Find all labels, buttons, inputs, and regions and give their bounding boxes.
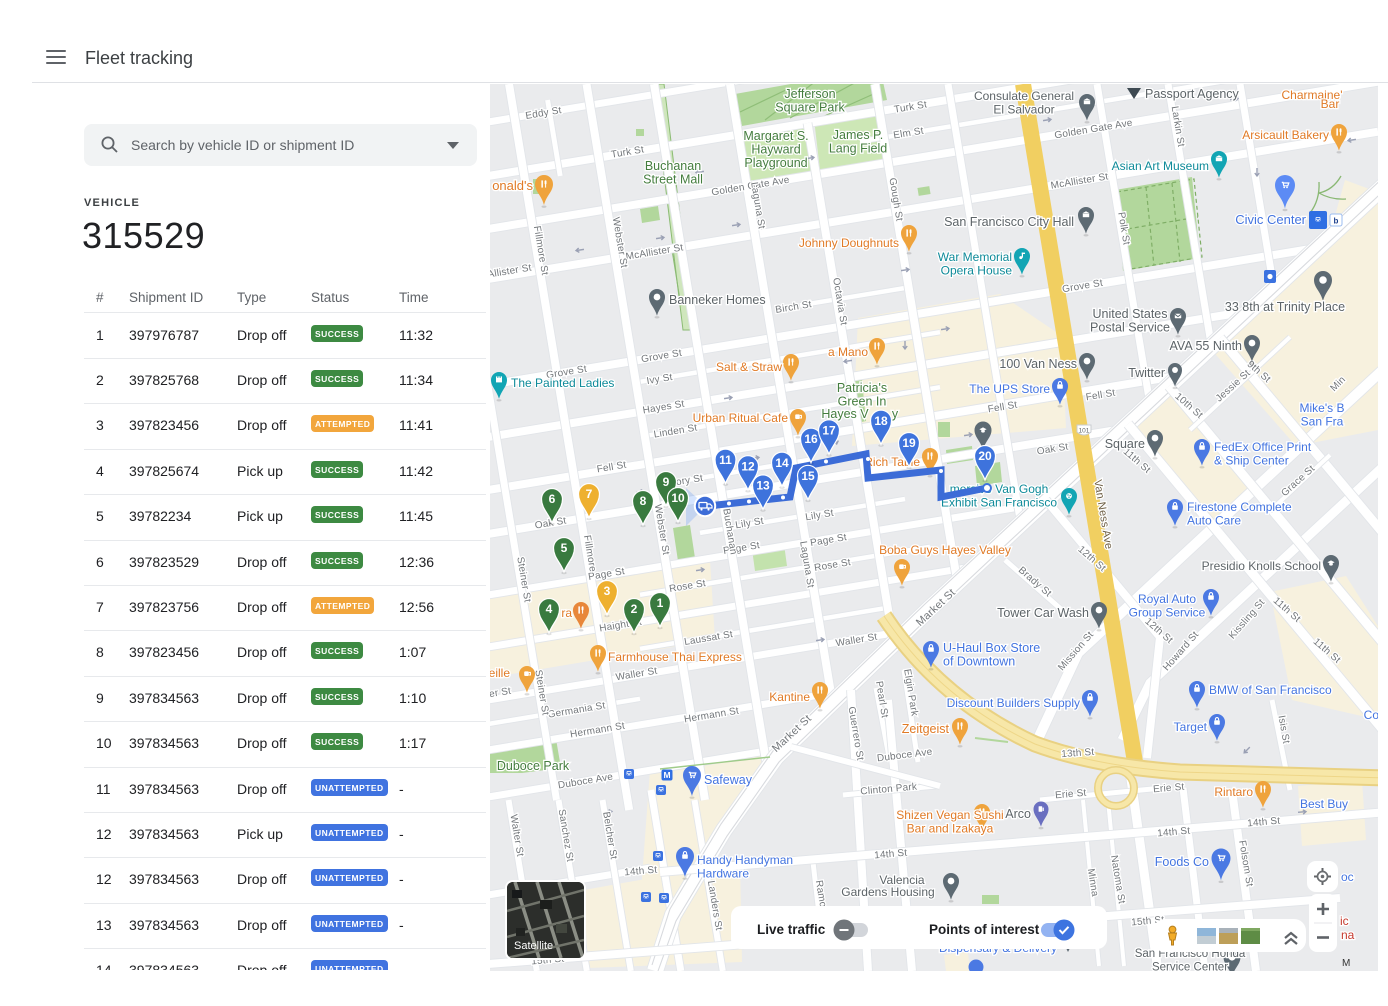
- svg-text:Satellite: Satellite: [514, 940, 553, 952]
- svg-text:Presidio Knolls School: Presidio Knolls School: [1202, 559, 1321, 573]
- svg-text:Urban Ritual Cafe: Urban Ritual Cafe: [693, 411, 789, 425]
- svg-text:Hayward: Hayward: [751, 143, 800, 157]
- svg-text:Exhibit San Francisco: Exhibit San Francisco: [941, 496, 1057, 510]
- svg-text:5: 5: [561, 541, 568, 555]
- svg-text:eille: eille: [490, 666, 510, 680]
- svg-text:Zeitgeist: Zeitgeist: [902, 722, 950, 736]
- svg-text:13: 13: [756, 479, 770, 493]
- svg-text:33 8th at Trinity Place: 33 8th at Trinity Place: [1225, 300, 1345, 314]
- svg-text:3: 3: [604, 584, 611, 598]
- svg-text:12: 12: [741, 459, 755, 473]
- svg-text:Farmhouse Thai Express: Farmhouse Thai Express: [608, 650, 742, 664]
- svg-text:Target: Target: [1174, 720, 1208, 734]
- svg-text:Hayes V: Hayes V: [821, 407, 869, 421]
- svg-text:Twitter: Twitter: [1128, 366, 1165, 380]
- svg-text:U-Haul Box Store: U-Haul Box Store: [943, 641, 1040, 655]
- svg-text:Banneker Homes: Banneker Homes: [669, 293, 766, 307]
- svg-text:ra: ra: [561, 606, 572, 620]
- svg-text:Foods Co: Foods Co: [1155, 855, 1209, 869]
- svg-text:Johnny Doughnuts: Johnny Doughnuts: [799, 236, 899, 250]
- svg-text:Bar and Izakaya: Bar and Izakaya: [907, 822, 994, 836]
- svg-text:1: 1: [657, 596, 664, 610]
- svg-text:4: 4: [546, 602, 553, 616]
- svg-text:7: 7: [586, 487, 593, 501]
- svg-text:Hardware: Hardware: [697, 867, 749, 881]
- svg-text:Jefferson: Jefferson: [784, 87, 835, 101]
- svg-text:a Mano: a Mano: [828, 345, 868, 359]
- svg-text:FedEx Office Print: FedEx Office Print: [1214, 440, 1312, 454]
- svg-text:Asian Art Museum: Asian Art Museum: [1112, 159, 1209, 173]
- svg-text:Buchanan: Buchanan: [645, 159, 701, 173]
- svg-text:ic: ic: [1340, 914, 1349, 928]
- svg-text:15: 15: [801, 469, 815, 483]
- svg-text:Safeway: Safeway: [704, 773, 753, 787]
- svg-text:Square: Square: [1105, 437, 1145, 451]
- svg-text:Passport Agency: Passport Agency: [1145, 87, 1240, 101]
- svg-text:Shizen Vegan Sushi: Shizen Vegan Sushi: [896, 808, 1003, 822]
- svg-text:San Francisco City Hall: San Francisco City Hall: [944, 215, 1074, 229]
- svg-text:Kantine: Kantine: [769, 690, 810, 704]
- svg-text:Arco: Arco: [1005, 807, 1031, 821]
- svg-text:Tower Car Wash: Tower Car Wash: [997, 606, 1089, 620]
- svg-text:20: 20: [978, 449, 992, 463]
- svg-text:El Salvador: El Salvador: [993, 103, 1054, 117]
- svg-text:Consulate General: Consulate General: [974, 89, 1074, 103]
- svg-text:Live traffic: Live traffic: [757, 922, 826, 937]
- svg-text:Bar: Bar: [1321, 97, 1340, 111]
- svg-text:The Painted Ladies: The Painted Ladies: [511, 376, 614, 390]
- svg-text:of Downtown: of Downtown: [943, 655, 1015, 669]
- svg-text:Street Mall: Street Mall: [643, 173, 703, 187]
- svg-text:16: 16: [804, 432, 818, 446]
- svg-text:10: 10: [671, 491, 685, 505]
- svg-text:The UPS Store: The UPS Store: [969, 382, 1050, 396]
- svg-text:17: 17: [822, 424, 836, 438]
- svg-text:Auto Care: Auto Care: [1187, 514, 1241, 528]
- svg-text:Square Park: Square Park: [775, 101, 845, 115]
- svg-text:United States: United States: [1092, 307, 1167, 321]
- svg-text:Gardens Housing: Gardens Housing: [841, 885, 934, 899]
- svg-text:Discount Builders Supply: Discount Builders Supply: [947, 696, 1080, 710]
- svg-text:Duboce Park: Duboce Park: [497, 759, 570, 773]
- svg-text:Mike's B: Mike's B: [1300, 401, 1345, 415]
- svg-text:James P.: James P.: [833, 128, 884, 142]
- svg-text:Playground: Playground: [744, 156, 807, 170]
- svg-text:Rintaro: Rintaro: [1214, 785, 1253, 799]
- svg-text:na: na: [1341, 928, 1355, 942]
- svg-text:14: 14: [775, 456, 789, 470]
- svg-text:11: 11: [719, 453, 732, 467]
- svg-text:Arsicault Bakery: Arsicault Bakery: [1242, 128, 1329, 142]
- svg-text:Lang Field: Lang Field: [829, 142, 887, 156]
- svg-text:b: b: [1334, 217, 1339, 226]
- svg-text:Boba Guys Hayes Valley: Boba Guys Hayes Valley: [879, 543, 1011, 557]
- svg-text:onald's: onald's: [492, 178, 533, 193]
- svg-text:2: 2: [631, 602, 638, 616]
- svg-text:oc: oc: [1341, 870, 1354, 884]
- svg-text:San Fra: San Fra: [1301, 415, 1344, 429]
- svg-text:Postal Service: Postal Service: [1090, 321, 1170, 335]
- svg-text:& Ship Center: & Ship Center: [1214, 454, 1289, 468]
- svg-text:Patricia's: Patricia's: [837, 381, 887, 395]
- svg-text:Opera House: Opera House: [941, 264, 1013, 278]
- svg-text:AVA 55 Ninth: AVA 55 Ninth: [1170, 339, 1243, 353]
- svg-text:War Memorial: War Memorial: [938, 250, 1012, 264]
- svg-text:13th St: 13th St: [1061, 747, 1095, 760]
- svg-text:Service Center: Service Center: [1152, 962, 1228, 972]
- svg-text:Civic Center: Civic Center: [1235, 212, 1306, 227]
- svg-text:M: M: [1342, 958, 1350, 969]
- svg-text:y: y: [892, 407, 899, 421]
- svg-text:9: 9: [663, 475, 670, 489]
- svg-text:101: 101: [1079, 428, 1090, 435]
- svg-text:Firestone Complete: Firestone Complete: [1187, 500, 1292, 514]
- svg-text:Margaret S.: Margaret S.: [743, 129, 808, 143]
- svg-text:Salt & Straw: Salt & Straw: [716, 360, 782, 374]
- svg-text:100 Van Ness: 100 Van Ness: [999, 357, 1077, 371]
- svg-text:Best Buy: Best Buy: [1300, 797, 1348, 811]
- svg-text:19: 19: [902, 436, 916, 450]
- svg-text:Points of interest: Points of interest: [929, 922, 1040, 937]
- svg-text:Co: Co: [1364, 708, 1378, 722]
- svg-text:M: M: [663, 770, 670, 780]
- svg-text:6: 6: [549, 492, 556, 506]
- svg-text:Handy Handyman: Handy Handyman: [697, 853, 793, 867]
- svg-text:BMW of San Francisco: BMW of San Francisco: [1209, 683, 1332, 697]
- svg-text:Royal Auto: Royal Auto: [1138, 592, 1196, 606]
- svg-text:8: 8: [640, 494, 647, 508]
- svg-text:Group Service: Group Service: [1129, 606, 1206, 620]
- svg-text:18: 18: [874, 414, 888, 428]
